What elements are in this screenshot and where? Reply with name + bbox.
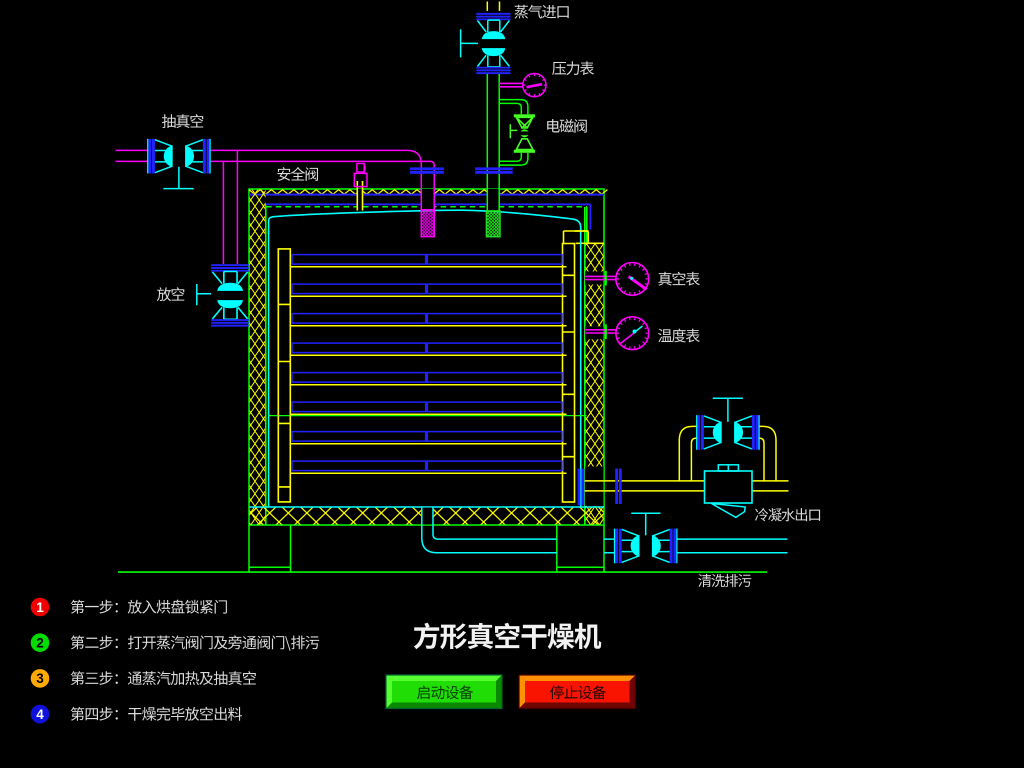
svg-text:1: 1 [36, 600, 44, 615]
svg-text:3: 3 [36, 671, 44, 686]
svg-text:2: 2 [36, 636, 44, 651]
svg-text:4: 4 [36, 707, 44, 722]
